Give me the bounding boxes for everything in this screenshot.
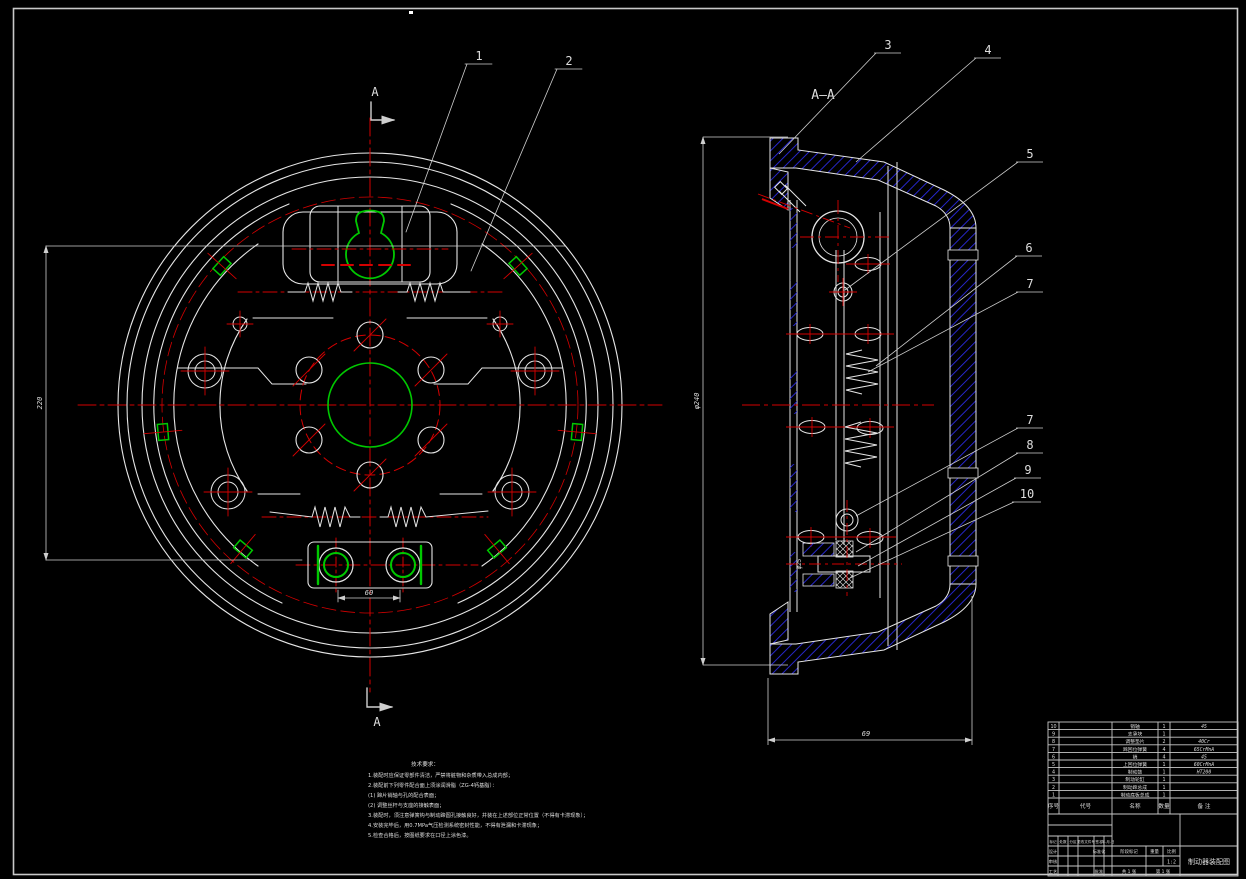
bom-row: 3制动轮缸1 bbox=[1052, 776, 1166, 783]
bom-header-no: 序号 bbox=[1048, 802, 1060, 810]
svg-text:制动底板总成: 制动底板总成 bbox=[1121, 791, 1150, 798]
svg-text:制动蹄总成: 制动蹄总成 bbox=[1123, 784, 1147, 791]
note-line-3: (1) 蹄片销轴与孔的配合表面； bbox=[368, 791, 439, 799]
role-process: 工艺 bbox=[1049, 869, 1057, 874]
svg-text:1: 1 bbox=[1052, 792, 1055, 798]
svg-text:10: 10 bbox=[1050, 724, 1056, 730]
bom-header-remark: 备 注 bbox=[1198, 802, 1211, 810]
callout-3: 3 bbox=[884, 38, 891, 52]
note-line-4: (2) 调整丝杆与支座的接触表面； bbox=[368, 801, 444, 809]
bom-header-code: 代号 bbox=[1080, 802, 1092, 810]
cut-mark-top: A bbox=[371, 85, 379, 99]
dim-anchor-span: 60 bbox=[338, 589, 400, 602]
bom-row: 8调整垫片240Cr bbox=[1052, 738, 1210, 745]
svg-text:3: 3 bbox=[1052, 777, 1055, 783]
svg-text:65CrMnA: 65CrMnA bbox=[1194, 747, 1214, 753]
centerlines bbox=[78, 118, 662, 692]
bom-rows: 10销轴145 9支承块1 8调整垫片240Cr 7蹄回位弹簧465CrMnA … bbox=[1050, 723, 1214, 798]
dim-text-240: φ240 bbox=[693, 393, 701, 410]
svg-text:1: 1 bbox=[1162, 732, 1165, 738]
svg-text:1: 1 bbox=[1162, 724, 1165, 730]
dim-drum-bore: 220 bbox=[36, 246, 565, 560]
dim-text-60: 60 bbox=[365, 589, 373, 597]
svg-text:蹄回位弹簧: 蹄回位弹簧 bbox=[1123, 746, 1147, 753]
sheet-number: 第 1 张 bbox=[1156, 868, 1171, 875]
note-line-2: 2.装配前下列零件配合面上须涂润滑脂（ZG-4钙基脂）： bbox=[368, 781, 497, 789]
rev-count: 处数 bbox=[1059, 839, 1067, 844]
callout-7-upper: 7 bbox=[1026, 277, 1033, 291]
role-design: 设计 bbox=[1049, 848, 1057, 855]
svg-text:4: 4 bbox=[1052, 770, 1055, 776]
role-standard: 标准化 bbox=[1093, 848, 1106, 855]
bom-row: 10销轴145 bbox=[1050, 723, 1207, 730]
svg-text:40Cr: 40Cr bbox=[1198, 739, 1210, 745]
bom-row: 2制动蹄总成1 bbox=[1052, 784, 1166, 791]
rev-date: 年.月.日 bbox=[1101, 839, 1114, 844]
bom-header-qty: 数量 bbox=[1158, 802, 1170, 810]
scale-value: 1:2 bbox=[1167, 860, 1176, 866]
bom-row: 9支承块1 bbox=[1052, 731, 1166, 738]
note-line-5: 3.装配时，须注意弹簧钩与制动蹄圆孔接触良好，并装在上述部位正常位置（不得有卡滞… bbox=[368, 811, 588, 819]
upper-return-springs bbox=[288, 283, 470, 301]
callout-4: 4 bbox=[984, 43, 991, 57]
svg-text:9: 9 bbox=[1052, 732, 1055, 738]
svg-text:1: 1 bbox=[1162, 777, 1165, 783]
scale-label: 比例 bbox=[1167, 848, 1176, 855]
dim-drum-outer: φ240 bbox=[693, 137, 788, 665]
svg-text:7: 7 bbox=[1052, 747, 1055, 753]
note-line-7: 5.检查合格后，按图纸要求在口径上涂色漆。 bbox=[368, 831, 472, 839]
drum-section bbox=[770, 138, 978, 674]
dim-text-69: 69 bbox=[862, 730, 870, 738]
svg-text:制动轮缸: 制动轮缸 bbox=[1125, 776, 1144, 783]
callout-10: 10 bbox=[1020, 487, 1034, 501]
info-cells: 阶段标记 重量 比例 1:2 共 1 张 第 1 张 bbox=[1120, 848, 1176, 875]
title-block: 序号 代号 名称 数量 备 注 10销轴145 9支承块1 8调整垫片240Cr… bbox=[1048, 722, 1238, 876]
callout-7-lower: 7 bbox=[1026, 413, 1033, 427]
svg-text:6: 6 bbox=[1052, 754, 1055, 760]
svg-text:1: 1 bbox=[1162, 770, 1165, 776]
bom-row: 7蹄回位弹簧465CrMnA bbox=[1052, 746, 1214, 753]
revision-row: 标记 处数 分区 更改文件号 签名 年.月.日 bbox=[1049, 839, 1114, 844]
section-title: A—A bbox=[811, 88, 835, 103]
section-view: A—A bbox=[693, 38, 1043, 745]
drawing-title: 制动器装配图 bbox=[1188, 857, 1230, 866]
svg-text:上回位弹簧: 上回位弹簧 bbox=[1123, 761, 1147, 768]
role-check: 审核 bbox=[1049, 858, 1058, 865]
bom-row: 5上回位弹簧160CrMnA bbox=[1052, 761, 1214, 768]
svg-text:5: 5 bbox=[1052, 762, 1055, 768]
dim-text-220: 220 bbox=[36, 397, 44, 410]
note-line-6: 4.安装完毕后，用0.7MPa气压检测系统密封性能，不得有泄漏和卡滞现象； bbox=[368, 821, 542, 829]
svg-text:销轴: 销轴 bbox=[1130, 723, 1140, 730]
tech-notes: 技术要求： 1.装配时应保证零部件清洁，严禁将脏物和杂质带入总成内部； 2.装配… bbox=[368, 760, 588, 839]
cut-mark-bottom: A bbox=[373, 715, 381, 729]
svg-text:45: 45 bbox=[1201, 724, 1207, 730]
section-springs bbox=[845, 350, 878, 467]
svg-text:支承块: 支承块 bbox=[1128, 731, 1143, 738]
callouts-section bbox=[779, 53, 1043, 578]
stage-label: 阶段标记 bbox=[1120, 848, 1138, 855]
svg-text:调整垫片: 调整垫片 bbox=[1125, 738, 1144, 745]
bom-row: 1制动底板总成1 bbox=[1052, 791, 1166, 798]
notes-title: 技术要求： bbox=[411, 760, 439, 768]
anchor-pin-section: φ25 bbox=[786, 500, 902, 596]
weight-label: 重量 bbox=[1150, 848, 1159, 855]
bom-header: 序号 代号 名称 数量 备 注 bbox=[1048, 802, 1211, 810]
callout-8: 8 bbox=[1026, 438, 1033, 452]
svg-text:1: 1 bbox=[1162, 792, 1165, 798]
rev-mark: 标记 bbox=[1049, 839, 1057, 844]
front-view: 60 220 A A 1 2 bbox=[36, 49, 662, 729]
svg-text:8: 8 bbox=[1052, 739, 1055, 745]
callout-2: 2 bbox=[565, 54, 572, 68]
sheet-total: 共 1 张 bbox=[1122, 868, 1137, 875]
bom-row: 4制动鼓1HT200 bbox=[1052, 769, 1211, 776]
bom-header-name: 名称 bbox=[1129, 802, 1141, 810]
callout-9: 9 bbox=[1024, 463, 1031, 477]
callout-1: 1 bbox=[475, 49, 482, 63]
note-line-1: 1.装配时应保证零部件清洁，严禁将脏物和杂质带入总成内部； bbox=[368, 771, 513, 779]
dim-text-pin: φ25 bbox=[796, 558, 803, 569]
svg-text:60CrMnA: 60CrMnA bbox=[1194, 762, 1214, 768]
rev-docno: 更改文件号 bbox=[1077, 839, 1095, 844]
role-labels: 设计 审核 工艺 标准化 批准 bbox=[1049, 848, 1106, 875]
role-approve: 批准 bbox=[1095, 868, 1103, 875]
svg-text:4: 4 bbox=[1162, 754, 1165, 760]
rev-zone: 分区 bbox=[1069, 839, 1077, 844]
svg-text:45: 45 bbox=[1201, 754, 1207, 760]
callout-5: 5 bbox=[1026, 147, 1033, 161]
stray-dot bbox=[409, 11, 413, 14]
cad-canvas: 60 220 A A 1 2 A—A bbox=[0, 0, 1246, 879]
svg-text:制动鼓: 制动鼓 bbox=[1128, 769, 1143, 776]
svg-text:1: 1 bbox=[1162, 762, 1165, 768]
svg-text:2: 2 bbox=[1162, 739, 1165, 745]
svg-text:4: 4 bbox=[1162, 747, 1165, 753]
callout-6: 6 bbox=[1025, 241, 1032, 255]
bom-row: 6销445 bbox=[1052, 753, 1207, 760]
svg-text:销: 销 bbox=[1133, 753, 1138, 760]
svg-text:2: 2 bbox=[1052, 785, 1055, 791]
svg-text:HT200: HT200 bbox=[1196, 770, 1212, 776]
drawing-sheet: 60 220 A A 1 2 A—A bbox=[0, 0, 1246, 879]
svg-text:1: 1 bbox=[1162, 785, 1165, 791]
